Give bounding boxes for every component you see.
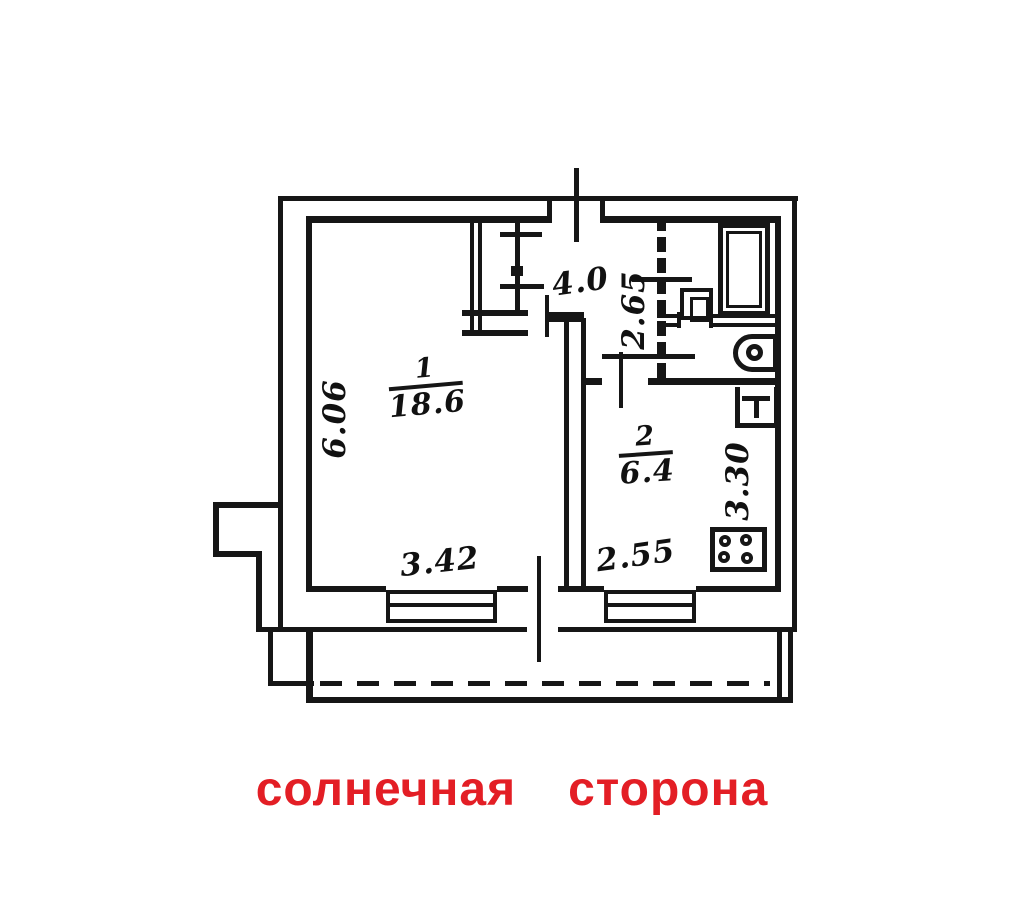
dim-kitchen-window: 2.55 [594, 533, 678, 580]
bottom-inner-c [558, 586, 604, 592]
closet-wall-left-outer [470, 216, 474, 336]
bathtub-icon [718, 223, 770, 316]
dim-left-depth: 6.06 [315, 364, 355, 474]
kitchen-window [604, 590, 696, 623]
dim-kitchen-depth-text: 3.30 [720, 441, 756, 521]
bottom-outer-a [256, 627, 527, 632]
balcony-bottom [306, 697, 793, 703]
dim-left-depth-text: 6.06 [317, 379, 353, 459]
toilet-icon [733, 334, 778, 372]
outer-wall-left [278, 196, 283, 632]
porch-top [213, 502, 283, 508]
caption-word-1: солнечная [256, 762, 516, 817]
room2-area: 6.4 [619, 456, 676, 490]
outer-wall-right [792, 196, 797, 632]
burner-icon [719, 535, 731, 547]
dim-hall-depth: 2.65 [614, 255, 654, 365]
room2-number: 2 [634, 423, 655, 450]
porch-left-lower [256, 551, 262, 632]
room-divider-line-a [564, 318, 569, 588]
room1-label: 1 18.6 [380, 352, 471, 423]
room1-number: 1 [414, 355, 435, 383]
balcony-right-outer [788, 632, 793, 703]
bottom-inner-b [497, 586, 528, 592]
inner-wall-left [306, 216, 312, 588]
closet-hinge [511, 266, 523, 276]
closet-tick-bottom [500, 284, 544, 289]
bottom-inner-a [306, 586, 386, 592]
bottom-outer-b [558, 627, 793, 632]
hall-wall-bottom-a [462, 310, 528, 316]
toilet-bowl-icon [746, 344, 763, 361]
kitchen-window-sill-line [608, 603, 692, 607]
balcony-left [306, 632, 313, 703]
dim-kitchen-depth: 3.30 [718, 426, 758, 536]
wash-basin-icon [680, 288, 713, 320]
wc-wall-bottom [648, 378, 781, 385]
balcony-door-tick [537, 556, 541, 662]
room-divider-line-b [581, 318, 586, 588]
room1-window-sill-line [390, 603, 493, 607]
room1-window [386, 590, 497, 623]
room2-label: 2 6.4 [612, 422, 680, 490]
entrance-door-line [574, 168, 579, 242]
balcony-right-inner [777, 632, 782, 697]
entrance-jamb-left [547, 200, 552, 223]
dim-hall-depth-text: 2.65 [616, 270, 652, 350]
closet-wall-left-inner [478, 216, 482, 336]
kitchen-sink-icon [735, 387, 779, 428]
inner-wall-top-right [604, 216, 775, 223]
closet-tick-top [500, 232, 542, 237]
hall-wall-bottom-b [462, 330, 528, 336]
kitchen-wall-top [584, 378, 602, 385]
balcony-tab-left [268, 632, 273, 686]
burner-icon [718, 551, 730, 563]
porch-step [213, 551, 262, 557]
floor-plan: 1 18.6 2 6.4 4.0 2.65 6.06 3.30 3.42 2.5… [0, 0, 1024, 903]
room1-area: 18.6 [388, 387, 467, 424]
porch-left-upper [213, 502, 219, 557]
dim-room1-window: 3.42 [398, 540, 481, 584]
caption-word-2: сторона [568, 762, 768, 817]
dim-hall-width: 4.0 [550, 260, 611, 304]
outer-wall-top [278, 196, 798, 201]
entrance-jamb-right [600, 200, 605, 223]
caption-sunny-side: солнечная сторона [0, 762, 1024, 817]
bottom-inner-d [696, 586, 781, 592]
bath-wall-b2 [712, 323, 781, 327]
balcony-dashed-line [320, 681, 770, 686]
burner-icon [741, 552, 753, 564]
inner-wall-top-left [306, 216, 547, 223]
